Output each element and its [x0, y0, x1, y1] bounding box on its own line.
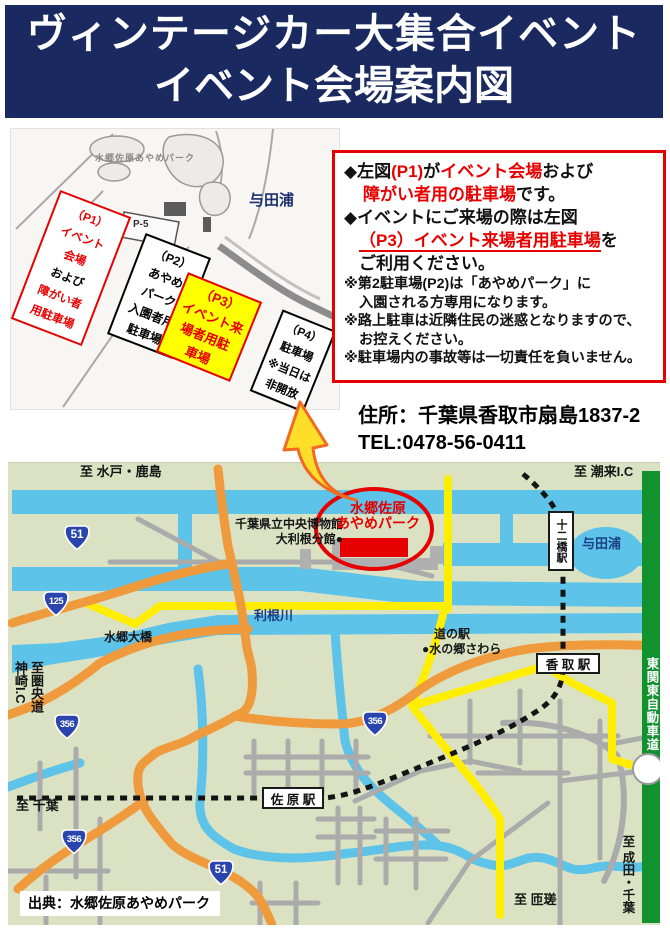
flyer-page: ヴィンテージカー大集合イベント イベント会場案内図 — [0, 0, 670, 935]
label-suigo-ohashi: 水郷大橋 — [104, 631, 152, 645]
note-text: ※駐車場内の事故等は一切責任を負いません。 — [344, 350, 641, 366]
yodaura-label-park: 与田浦 — [249, 189, 294, 210]
park-ponds — [90, 135, 230, 216]
museum-line2: 大利根分館● — [276, 532, 343, 546]
michinoeki-line1: 道の駅 — [422, 627, 470, 641]
title-line1: ヴィンテージカー大集合イベント — [5, 7, 663, 61]
arrow-icon — [278, 392, 370, 504]
header-banner: ヴィンテージカー大集合イベント イベント会場案内図 — [5, 5, 663, 118]
road-map: 至 水戸・鹿島 至 潮来I.C 千葉県立中央博物館 大利根分館● 水郷佐原 あや… — [8, 462, 660, 925]
label-to-mito: 至 水戸・鹿島 — [80, 465, 162, 480]
label-michinoeki: 道の駅 ●水の郷さわら — [422, 627, 501, 657]
station-name: 十二橋駅 — [553, 519, 569, 563]
note-text: ※第2駐車場(P2)は「あやめパーク」に — [344, 276, 591, 292]
park-name-label: 水郷佐原あやめパーク — [95, 151, 195, 164]
note-text: 入園される方専用になります。 — [344, 295, 556, 311]
route-shield-356-b: 356 — [59, 828, 89, 857]
label-to-chiba: 至 千葉 — [16, 799, 59, 814]
michinoeki-line2: ●水の郷さわら — [422, 642, 501, 656]
shield-number: 356 — [52, 719, 82, 730]
address-block: 住所：千葉県香取市扇島1837-2 TEL:0478-56-0411 — [358, 403, 640, 457]
venue-name-line2: あやめパーク — [336, 515, 420, 531]
b1-text: および — [542, 162, 593, 181]
shield-number: 51 — [206, 864, 236, 876]
route-shield-125: 125 — [41, 590, 71, 619]
b2-p3-red-underline: （P3）イベント来場者用駐車場 — [359, 231, 601, 252]
instruction-box: ◆左図(P1)がイベント会場および 障がい者用の駐車場です。 ◆イベントにご来場… — [332, 150, 666, 383]
label-to-narita-chiba: 至 成田・千葉 — [620, 835, 634, 925]
museum-line1: 千葉県立中央博物館 — [235, 517, 343, 531]
note-text: ※路上駐車は近隣住民の迷惑となりますので、 — [344, 313, 641, 329]
route-shield-51: 51 — [62, 524, 92, 553]
shield-number: 356 — [59, 834, 89, 845]
note-2: ※路上駐車は近隣住民の迷惑となりますので、 お控えください。 — [344, 312, 659, 349]
label-museum: 千葉県立中央博物館 大利根分館● — [198, 517, 343, 547]
bullet-2: ◆イベントにご来場の際は左図 （P3）イベント来場者用駐車場を ご利用ください。 — [344, 206, 659, 275]
shield-number: 51 — [62, 529, 92, 541]
b1-text: が — [423, 162, 440, 181]
note-1: ※第2駐車場(P2)は「あやめパーク」に 入園される方専用になります。 — [344, 275, 659, 312]
route-shield-356-c: 356 — [360, 710, 390, 739]
shield-number: 356 — [360, 716, 390, 727]
label-to-itako: 至 潮来I.C — [574, 465, 633, 480]
title-line2: イベント会場案内図 — [5, 61, 663, 111]
b1-text: ◆左図 — [344, 162, 391, 181]
shoreline-inner — [225, 237, 320, 299]
pointer-arrow — [278, 392, 370, 504]
note-text: お控えください。 — [344, 332, 472, 348]
note-3: ※駐車場内の事故等は一切責任を負いません。 — [344, 349, 659, 368]
b2-text: ご利用ください。 — [344, 254, 495, 273]
phone-line: TEL:0478-56-0411 — [358, 430, 640, 457]
label-tonegawa: 利根川 — [254, 609, 293, 624]
p5-label: P-5 — [133, 219, 149, 230]
venue-red-rect — [340, 538, 408, 557]
b1-disabled-red: 障がい者用の駐車場 — [344, 185, 516, 204]
b1-p1-red: (P1) — [391, 162, 423, 181]
station-junikobashi: 十二橋駅 — [548, 511, 574, 571]
route-shield-51-b: 51 — [206, 859, 236, 888]
station-name: 佐 原 駅 — [271, 789, 315, 808]
label-to-kanzaki-ic: 至圏央道 神崎I.C — [12, 661, 44, 731]
label-venue-name: 水郷佐原 あやめパーク — [328, 501, 428, 531]
b2-text: を — [601, 231, 618, 250]
kanzaki-col1: 至圏央道 — [29, 661, 44, 713]
station-sawara: 佐 原 駅 — [262, 787, 324, 809]
shield-number: 125 — [41, 596, 71, 607]
address-line: 住所：千葉県香取市扇島1837-2 — [358, 403, 640, 430]
source-credit: 出典：水郷佐原あやめパーク — [20, 891, 220, 916]
b1-venue-red: イベント会場 — [440, 162, 542, 181]
park-scan-map: 水郷佐原あやめパーク P-5 与田浦 （P2） あやめ パーク 入園者用 駐車場… — [10, 128, 340, 410]
route-shield-356-a: 356 — [52, 713, 82, 742]
label-yodaura: 与田浦 — [582, 537, 621, 552]
bullet-1: ◆左図(P1)がイベント会場および 障がい者用の駐車場です。 — [344, 160, 659, 206]
station-name: 香 取 駅 — [546, 654, 590, 673]
kanzaki-col2: 神崎I.C — [13, 661, 28, 704]
label-expressway: 東関東自動車道 — [644, 657, 658, 761]
label-to-sosa: 至 匝瑳 — [514, 893, 557, 908]
station-katori: 香 取 駅 — [536, 653, 600, 674]
b2-text: ◆イベントにご来場の際は左図 — [344, 208, 578, 227]
b1-text: です。 — [516, 185, 565, 204]
